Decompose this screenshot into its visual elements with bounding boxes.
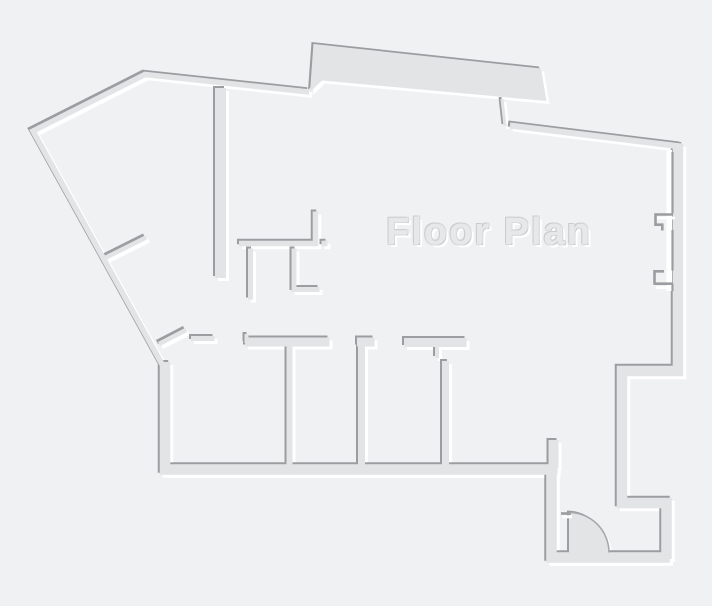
window-highlight-band — [667, 150, 673, 291]
wall-outer-top-right — [510, 126, 681, 147]
wall-bay-connector — [502, 99, 505, 126]
wall-top-bay — [310, 44, 547, 101]
wall-corner-door-stub — [159, 330, 186, 344]
floor-plan-title: Floor Plan — [386, 211, 592, 254]
interior-walls — [104, 88, 467, 466]
wall-diagonal-door-stub — [104, 238, 146, 259]
right-wall-windows — [654, 150, 675, 291]
walls-layer — [33, 44, 681, 559]
wall-hanging-stub-l-shape — [294, 249, 320, 290]
outer-walls — [33, 44, 681, 559]
floor-plan-canvas: Floor Plan — [0, 0, 712, 606]
floor-plan-drawing — [0, 0, 712, 606]
wall-outer-left-and-top — [33, 75, 309, 367]
